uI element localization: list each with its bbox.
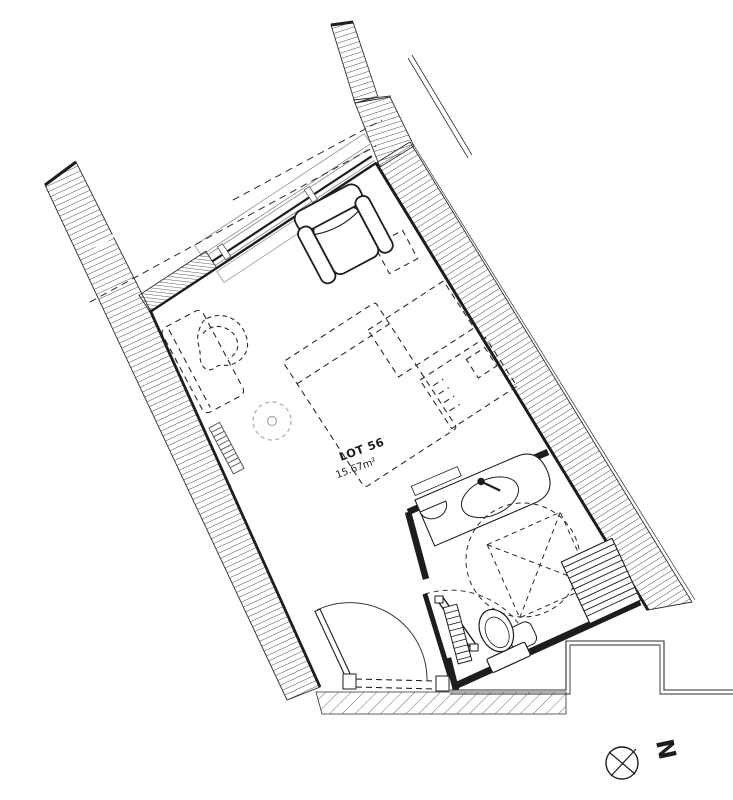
entry-door-leaf — [315, 609, 353, 681]
sink-vanity — [409, 435, 556, 546]
bathroom-wall-left-upper — [408, 512, 426, 579]
entry-threshold-dash-1 — [356, 679, 436, 681]
desk-chair-inner — [202, 320, 242, 364]
desk-chair — [185, 307, 255, 377]
upper-facade-line-2 — [412, 55, 472, 155]
corridor-hatch-band — [316, 692, 566, 714]
floor-plan: LOT 56 15.67m² N — [0, 0, 733, 800]
left-wall-inner-face — [150, 310, 320, 687]
round-table — [253, 402, 291, 440]
top-wall-upper-hatch — [331, 22, 378, 103]
north-compass-cross-1 — [609, 752, 635, 774]
window-corner-pier — [139, 251, 217, 312]
left-wall-hatch — [45, 162, 320, 700]
round-table-center — [268, 417, 277, 426]
north-symbol: N — [606, 737, 682, 779]
desk-chair-shape — [185, 307, 255, 377]
north-letter: N — [650, 737, 682, 762]
armchair — [288, 179, 395, 285]
entry-jamb-left — [343, 674, 356, 689]
room-label: LOT 56 15.67m² — [334, 435, 386, 481]
entry-threshold-dash-2 — [356, 687, 436, 689]
upper-facade-line-1 — [408, 58, 468, 158]
entry-jamb-right — [436, 676, 449, 691]
lot-label: LOT 56 — [337, 435, 386, 464]
towel-radiator — [443, 604, 472, 664]
round-table-outline — [253, 402, 291, 440]
bed-headboard-line — [297, 324, 389, 384]
entry-door — [315, 603, 449, 691]
